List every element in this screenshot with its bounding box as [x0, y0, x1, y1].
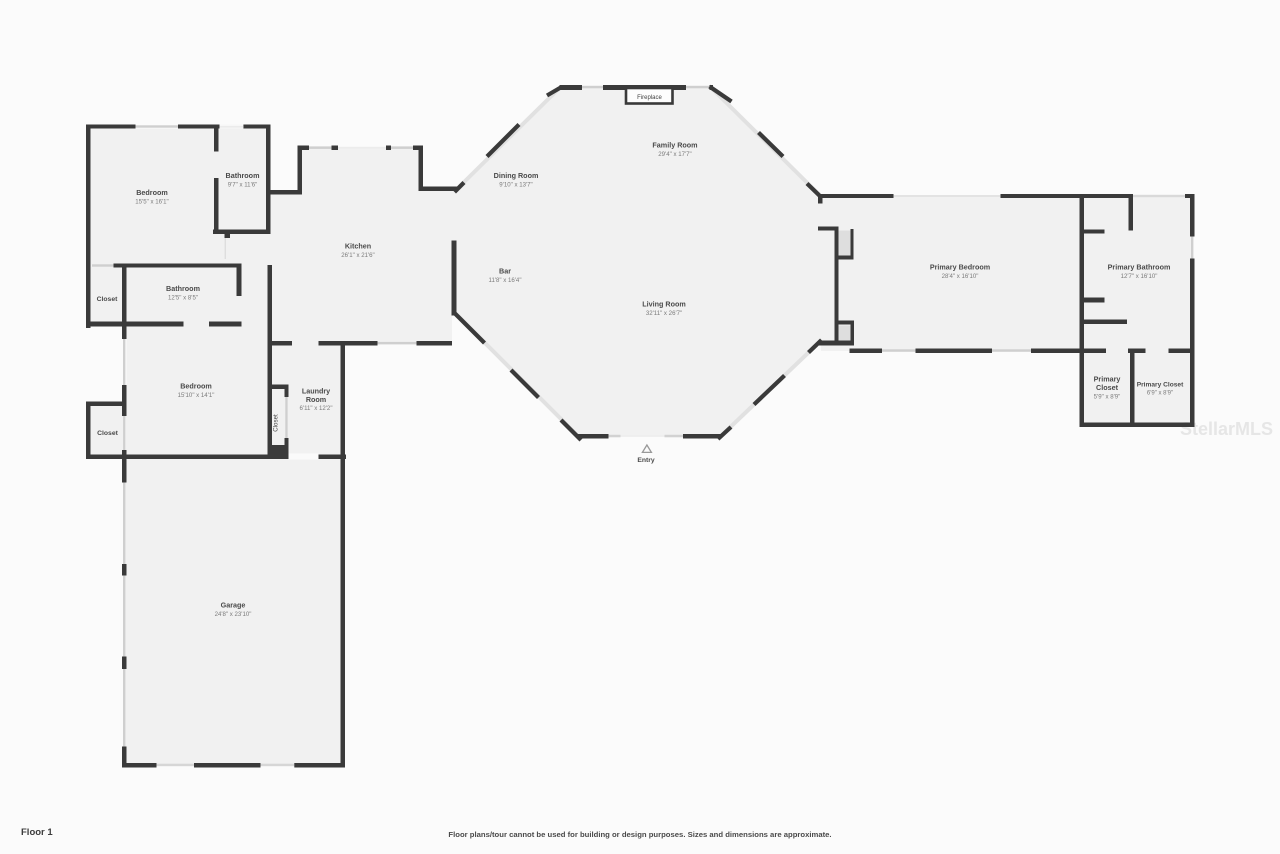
svg-text:6'11" x 12'2": 6'11" x 12'2"	[300, 405, 333, 412]
svg-text:Closet: Closet	[273, 414, 280, 432]
svg-text:Primary Bathroom: Primary Bathroom	[1108, 263, 1171, 272]
svg-text:15'10" x 14'1": 15'10" x 14'1"	[178, 392, 215, 399]
svg-text:9'7" x 11'6": 9'7" x 11'6"	[228, 182, 258, 189]
svg-text:Entry: Entry	[637, 457, 655, 464]
svg-text:26'1" x 21'6": 26'1" x 21'6"	[341, 252, 374, 259]
svg-text:12'7" x 16'10": 12'7" x 16'10"	[1121, 273, 1158, 280]
svg-text:Bathroom: Bathroom	[166, 284, 200, 293]
svg-text:11'8" x 16'4": 11'8" x 16'4"	[489, 277, 522, 284]
svg-text:Fireplace: Fireplace	[637, 95, 662, 101]
svg-text:Primary Bedroom: Primary Bedroom	[930, 263, 990, 272]
svg-text:28'4" x 16'10": 28'4" x 16'10"	[942, 273, 979, 280]
svg-text:Bedroom: Bedroom	[180, 382, 212, 391]
svg-text:24'8" x 23'10": 24'8" x 23'10"	[215, 611, 252, 618]
svg-text:15'5" x 16'1": 15'5" x 16'1"	[135, 199, 168, 206]
svg-text:Closet: Closet	[1096, 383, 1119, 392]
svg-text:Dining Room: Dining Room	[494, 171, 539, 180]
svg-text:Room: Room	[306, 395, 326, 404]
svg-text:5'9" x 8'9": 5'9" x 8'9"	[1094, 394, 1121, 401]
svg-text:Kitchen: Kitchen	[345, 242, 371, 251]
svg-text:12'5" x 8'5": 12'5" x 8'5"	[168, 295, 198, 302]
svg-text:Primary Closet: Primary Closet	[1137, 382, 1184, 389]
svg-text:9'10" x 13'7": 9'10" x 13'7"	[499, 182, 532, 189]
svg-text:32'11" x 26'7": 32'11" x 26'7"	[646, 310, 682, 317]
svg-text:29'4" x 17'7": 29'4" x 17'7"	[658, 151, 691, 158]
svg-text:Bedroom: Bedroom	[136, 188, 168, 197]
svg-text:Bathroom: Bathroom	[226, 171, 260, 180]
svg-text:Family Room: Family Room	[652, 141, 697, 150]
svg-text:Closet: Closet	[97, 430, 119, 437]
svg-text:Garage: Garage	[221, 601, 246, 610]
svg-text:Living Room: Living Room	[642, 300, 686, 309]
svg-text:6'9" x 8'9": 6'9" x 8'9"	[1147, 391, 1173, 397]
svg-text:Closet: Closet	[97, 296, 119, 303]
svg-text:Bar: Bar	[499, 267, 511, 276]
